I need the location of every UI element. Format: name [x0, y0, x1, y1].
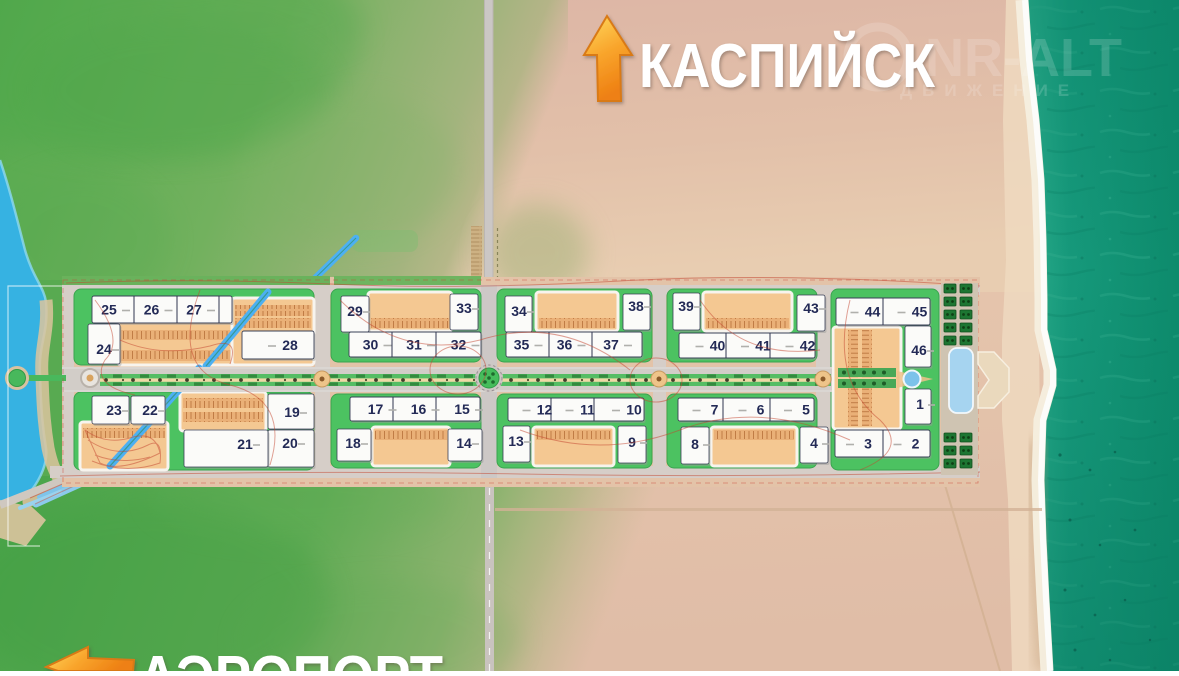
svg-text:13: 13: [508, 433, 524, 449]
svg-text:40: 40: [710, 338, 726, 354]
svg-text:23: 23: [106, 402, 122, 418]
svg-text:28: 28: [282, 337, 298, 353]
svg-text:14: 14: [456, 435, 472, 451]
svg-text:43: 43: [803, 300, 819, 316]
svg-text:21: 21: [237, 436, 253, 452]
svg-text:25: 25: [101, 302, 117, 318]
svg-text:45: 45: [912, 304, 928, 320]
svg-text:34: 34: [511, 303, 527, 319]
svg-text:18: 18: [345, 435, 361, 451]
svg-text:22: 22: [142, 402, 158, 418]
svg-text:17: 17: [368, 401, 384, 417]
svg-text:15: 15: [454, 401, 470, 417]
svg-text:16: 16: [411, 401, 427, 417]
svg-text:2: 2: [912, 436, 920, 452]
svg-text:АЭРОПОРТ: АЭРОПОРТ: [138, 644, 443, 671]
svg-text:46: 46: [911, 342, 927, 358]
svg-text:26: 26: [144, 302, 160, 318]
svg-text:29: 29: [347, 303, 363, 319]
svg-text:37: 37: [603, 337, 619, 353]
svg-text:44: 44: [865, 304, 881, 320]
svg-text:КАСПИЙСК: КАСПИЙСК: [639, 31, 935, 101]
svg-text:ДВИЖЕНИЕ: ДВИЖЕНИЕ: [900, 81, 1079, 100]
svg-text:10: 10: [626, 402, 642, 418]
svg-text:31: 31: [406, 337, 422, 353]
svg-text:12: 12: [537, 402, 553, 418]
svg-text:38: 38: [628, 298, 644, 314]
svg-text:36: 36: [557, 337, 573, 353]
svg-text:6: 6: [757, 402, 765, 418]
svg-text:35: 35: [514, 337, 530, 353]
svg-text:5: 5: [802, 402, 810, 418]
svg-text:20: 20: [282, 435, 298, 451]
svg-text:7: 7: [711, 402, 719, 418]
svg-text:8: 8: [691, 436, 699, 452]
svg-text:39: 39: [678, 298, 694, 314]
svg-text:NR-ALT: NR-ALT: [925, 28, 1122, 88]
svg-text:19: 19: [284, 404, 300, 420]
svg-text:1: 1: [916, 396, 924, 412]
svg-text:3: 3: [864, 436, 872, 452]
svg-text:30: 30: [363, 337, 379, 353]
svg-text:11: 11: [580, 402, 595, 418]
svg-text:4: 4: [810, 435, 818, 451]
svg-text:33: 33: [456, 300, 472, 316]
